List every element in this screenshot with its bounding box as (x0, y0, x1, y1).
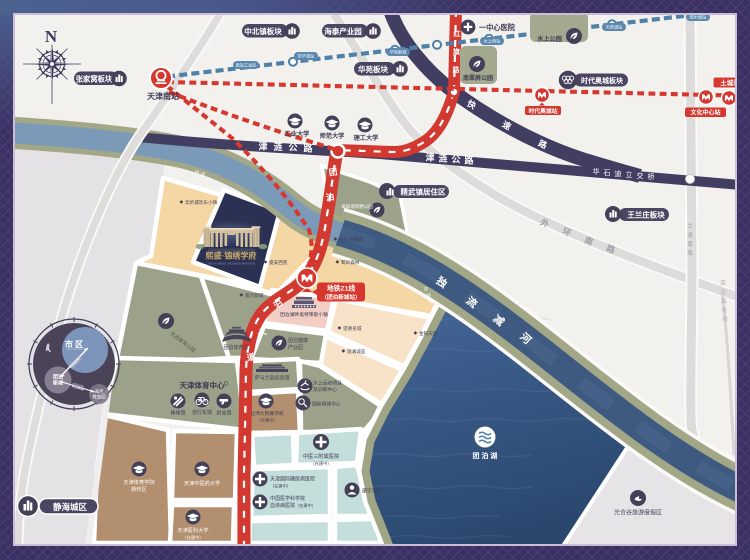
svg-text:自行车馆: 自行车馆 (192, 409, 212, 416)
svg-text:N: N (45, 27, 58, 46)
svg-text:金科天宸: 金科天宸 (419, 330, 438, 337)
svg-text:俊安西苑: 俊安西苑 (269, 259, 288, 266)
svg-text:精武镇居住区: 精武镇居住区 (401, 187, 446, 197)
svg-text:天津国际糖尿病医院: 天津国际糖尿病医院 (270, 476, 315, 483)
svg-text:中北镇板块: 中北镇板块 (244, 26, 282, 36)
svg-text:（在建中）: （在建中） (183, 534, 204, 541)
svg-text:时代奥城板块: 时代奥城板块 (581, 76, 624, 85)
svg-text:产业园: 产业园 (288, 344, 303, 351)
svg-text:路: 路 (303, 143, 313, 154)
svg-text:射击馆: 射击馆 (216, 410, 231, 417)
svg-text:理工大学: 理工大学 (354, 134, 379, 142)
svg-text:道: 道 (431, 304, 436, 311)
svg-text:兰: 兰 (687, 222, 693, 230)
svg-text:水上公园: 水上公园 (537, 35, 562, 43)
svg-text:水上运动项目: 水上运动项目 (313, 380, 342, 387)
svg-text:绿: 绿 (195, 169, 200, 175)
svg-text:工业大学: 工业大学 (285, 130, 310, 138)
svg-text:涟: 涟 (273, 141, 283, 152)
svg-text:萨马兰奇纪念馆: 萨马兰奇纪念馆 (254, 375, 289, 382)
svg-text:清: 清 (687, 231, 693, 239)
svg-text:南: 南 (687, 240, 693, 248)
svg-text:一中心医院: 一中心医院 (479, 23, 516, 32)
svg-text:绿: 绿 (429, 298, 434, 304)
svg-text:南站工业区: 南站工业区 (236, 62, 257, 69)
svg-text:诺德名城: 诺德名城 (343, 325, 362, 332)
svg-text:海泰产业园: 海泰产业园 (324, 26, 362, 36)
svg-text:红: 红 (454, 29, 461, 38)
svg-text:荣: 荣 (720, 279, 726, 287)
svg-text:THE XISHENG SPLENDID MANSION: THE XISHENG SPLENDID MANSION (207, 262, 255, 266)
svg-text:中国医学科学院: 中国医学科学院 (270, 495, 305, 502)
svg-text:天房·新雅郡: 天房·新雅郡 (339, 236, 364, 243)
svg-text:（在建中）: （在建中） (257, 417, 278, 424)
svg-text:路: 路 (464, 155, 474, 166)
svg-text:王兰庄板块: 王兰庄板块 (627, 210, 665, 220)
svg-text:泊: 泊 (325, 191, 335, 202)
svg-text:路: 路 (687, 249, 693, 257)
svg-text:涟: 涟 (438, 153, 448, 164)
svg-text:湖: 湖 (426, 292, 431, 299)
svg-text:乌: 乌 (720, 288, 726, 296)
svg-text:水上西站: 水上西站 (484, 38, 501, 45)
svg-text:棒球馆: 棒球馆 (170, 410, 185, 417)
svg-text:团泊湖畔奥特莱斯小镇: 团泊湖畔奥特莱斯小镇 (280, 311, 328, 318)
svg-text:文化中心站: 文化中心站 (689, 109, 720, 117)
svg-text:教育园: 教育园 (92, 394, 106, 401)
svg-text:土城站: 土城站 (720, 78, 735, 87)
svg-text:天津医科大学: 天津医科大学 (177, 526, 208, 534)
svg-text:地铁Z1线: 地铁Z1线 (327, 284, 356, 293)
svg-text:及训练中心: 及训练中心 (313, 386, 337, 393)
svg-text:康宁津园: 康宁津园 (362, 488, 382, 495)
svg-text:桥: 桥 (648, 172, 655, 181)
svg-text:熙盛·锦绣学府: 熙盛·锦绣学府 (206, 251, 257, 261)
svg-text:高: 高 (721, 297, 727, 305)
svg-text:团泊体育场: 团泊体育场 (223, 344, 248, 351)
svg-text:津: 津 (258, 141, 267, 152)
svg-text:公: 公 (288, 143, 297, 153)
svg-text:迪: 迪 (615, 169, 622, 178)
svg-text:天津南站: 天津南站 (147, 91, 179, 101)
svg-text:团: 团 (328, 166, 338, 177)
svg-text:天塔道站: 天塔道站 (606, 24, 623, 31)
svg-text:津: 津 (425, 152, 434, 163)
svg-text:团泊健康: 团泊健康 (288, 337, 308, 344)
svg-text:血液病医院（在建中）: 血液病医院（在建中） (270, 502, 316, 509)
svg-text:新城: 新城 (53, 380, 63, 387)
svg-text:团 泊 湖: 团 泊 湖 (473, 451, 498, 460)
svg-text:南翠屏公园: 南翠屏公园 (463, 74, 493, 82)
svg-text:富力新城: 富力新城 (245, 292, 264, 299)
svg-text:道: 道 (201, 171, 206, 178)
svg-text:线: 线 (722, 315, 728, 323)
svg-text:师范大学: 师范大学 (320, 132, 345, 140)
svg-text:国际网球中心: 国际网球中心 (312, 401, 341, 408)
svg-text:路: 路 (453, 65, 461, 74)
svg-text:华侨城欢乐小镇: 华侨城欢乐小镇 (185, 199, 218, 206)
svg-text:华苑新城: 华苑新城 (390, 49, 408, 56)
svg-text:天津体育学院: 天津体育学院 (123, 478, 155, 486)
svg-text:观澜诚品: 观澜诚品 (347, 348, 366, 355)
svg-text:北师大附属学校: 北师大附属学校 (250, 410, 284, 417)
svg-text:时代奥城站: 时代奥城站 (529, 107, 558, 115)
svg-text:天津中医药大学: 天津中医药大学 (184, 479, 220, 487)
svg-text:团泊: 团泊 (53, 374, 63, 381)
svg-text:京华道站: 京华道站 (298, 53, 315, 60)
svg-text:中医三附属医院: 中医三附属医院 (303, 452, 340, 460)
svg-text:华: 华 (593, 167, 600, 176)
svg-text:翠屏湖郊野公园: 翠屏湖郊野公园 (341, 203, 373, 210)
svg-text:（团泊新城站）: （团泊新城站） (321, 293, 360, 301)
svg-text:交: 交 (637, 171, 644, 180)
svg-text:立: 立 (626, 170, 633, 179)
svg-text:张家窝板块: 张家窝板块 (76, 75, 113, 84)
svg-text:公: 公 (451, 155, 460, 165)
svg-text:旗: 旗 (453, 47, 460, 56)
svg-text:光合谷旅游度假区: 光合谷旅游度假区 (614, 509, 662, 517)
svg-text:静海城区: 静海城区 (53, 502, 88, 512)
svg-text:石: 石 (604, 169, 611, 177)
svg-text:（在建中）: （在建中） (311, 460, 332, 467)
svg-text:鹭岭森林: 鹭岭森林 (341, 259, 360, 266)
svg-text:（在建中）: （在建中） (270, 483, 291, 490)
svg-text:市 区: 市 区 (65, 339, 83, 349)
svg-text:天津体育中心: 天津体育中心 (180, 380, 225, 390)
svg-text:新校区: 新校区 (131, 485, 147, 493)
svg-text:速: 速 (721, 307, 727, 314)
svg-text:华苑板块: 华苑板块 (358, 64, 388, 74)
